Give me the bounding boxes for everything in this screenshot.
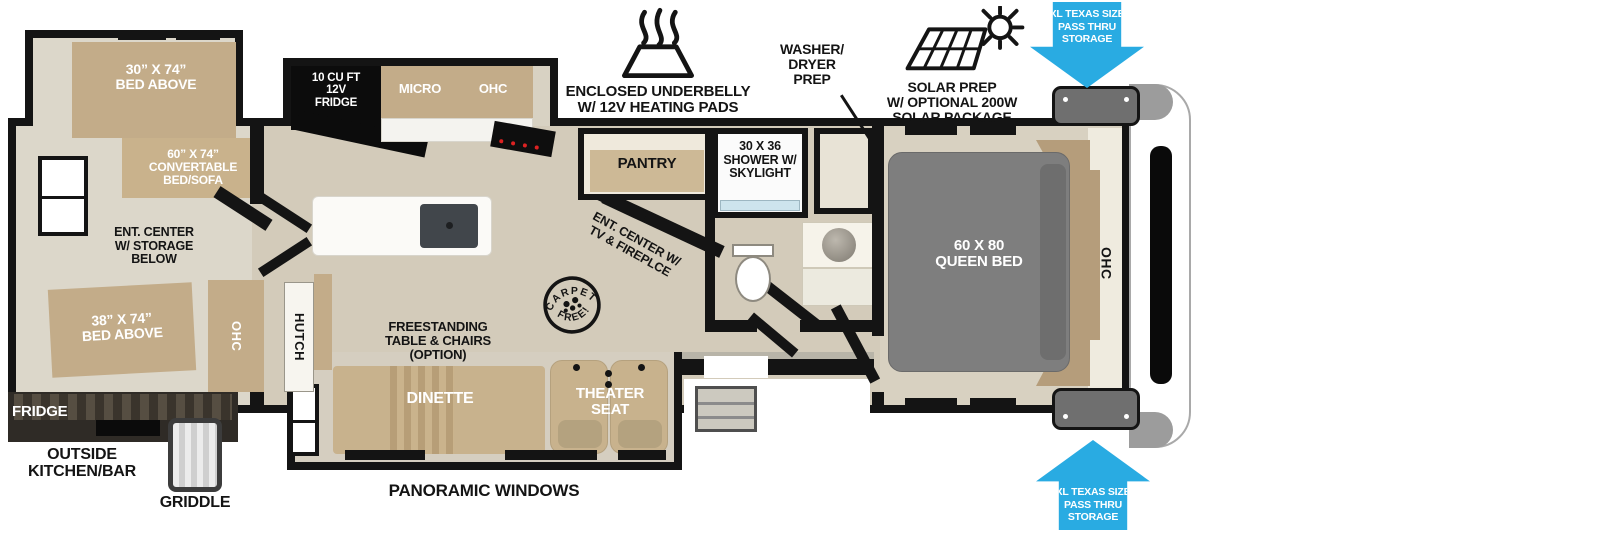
bedroom-window-icon bbox=[905, 398, 957, 407]
bunkroom-wall-upper bbox=[250, 126, 264, 204]
dinette-label: DINETTE bbox=[340, 390, 540, 407]
freestanding-table-label: FREESTANDING TABLE & CHAIRS (OPTION) bbox=[374, 320, 502, 362]
theater-cushion-right bbox=[618, 420, 662, 448]
theater-cushion-left bbox=[558, 420, 602, 448]
panoramic-windows-label: PANORAMIC WINDOWS bbox=[338, 482, 630, 500]
panoramic-window-icon bbox=[345, 450, 425, 460]
entry-door-opening bbox=[704, 356, 768, 378]
bunk-slide-window-icon bbox=[176, 30, 220, 40]
pass-thru-arrow-top: XL TEXAS SIZE PASS THRU STORAGE bbox=[1030, 2, 1144, 88]
queen-bed-label: 60 X 80 QUEEN BED bbox=[890, 238, 1068, 270]
bunk-bed-above-label: 30” X 74” BED ABOVE bbox=[78, 62, 234, 92]
bedroom-window-icon bbox=[970, 126, 1016, 135]
pass-thru-door-bottom bbox=[1052, 388, 1140, 430]
bedroom-window-icon bbox=[970, 398, 1016, 407]
dinette-table bbox=[390, 366, 454, 454]
bedroom-window-icon bbox=[905, 126, 957, 135]
griddle-icon bbox=[168, 418, 222, 492]
dinette-window-icon bbox=[289, 384, 319, 456]
solar-prep-label: SOLAR PREP W/ OPTIONAL 200W SOLAR PACKAG… bbox=[862, 80, 1042, 125]
shower-glass-icon bbox=[720, 200, 800, 211]
bunkroom-window-icon bbox=[38, 156, 88, 236]
hutch-side-cabinet bbox=[314, 274, 332, 370]
bedroom-wall-upper bbox=[872, 126, 884, 336]
kitchen-ohc-label: OHC bbox=[458, 82, 528, 96]
entry-steps bbox=[695, 386, 757, 432]
pass-thru-arrow-bottom: XL TEXAS SIZE PASS THRU STORAGE bbox=[1036, 440, 1150, 530]
solar-prep-icon bbox=[898, 6, 1030, 80]
micro-label: MICRO bbox=[385, 82, 455, 96]
theater-headrest-dot bbox=[605, 370, 612, 377]
bath-vanity-cabinet bbox=[802, 268, 880, 306]
carpet-free-stamp: CARPET FREE! bbox=[535, 268, 609, 342]
heating-pads-icon bbox=[610, 2, 706, 82]
toilet-icon bbox=[735, 256, 771, 302]
hutch-label: HUTCH bbox=[284, 288, 314, 386]
theater-seat-label: THEATER SEAT bbox=[548, 386, 672, 418]
theater-headrest-dot bbox=[573, 364, 580, 371]
pass-thru-door-top bbox=[1052, 86, 1140, 126]
washer-dryer-label: WASHER/ DRYER PREP bbox=[764, 42, 860, 87]
washer-dryer-closet bbox=[814, 128, 874, 214]
shower-label: 30 X 36 SHOWER W/ SKYLIGHT bbox=[714, 140, 806, 181]
panoramic-window-icon bbox=[618, 450, 666, 460]
theater-headrest-dot bbox=[638, 364, 645, 371]
outside-kitchen-label: OUTSIDE KITCHEN/BAR bbox=[12, 446, 152, 481]
bathroom-bottom-wall-left bbox=[705, 320, 757, 332]
kitchen-fridge-label: 10 CU FT 12V FRIDGE bbox=[291, 72, 381, 109]
panoramic-window-icon bbox=[505, 450, 597, 460]
outside-kitchen-appliance bbox=[96, 420, 160, 436]
bedroom-wall-lower bbox=[872, 392, 884, 405]
griddle-label: GRIDDLE bbox=[148, 494, 242, 511]
underbelly-label: ENCLOSED UNDERBELLY W/ 12V HEATING PADS bbox=[552, 84, 764, 116]
front-cap-window-icon bbox=[1150, 146, 1172, 384]
bedroom-ohc-label: OHC bbox=[1092, 230, 1120, 296]
bunk-ent-center-label: ENT. CENTER W/ STORAGE BELOW bbox=[92, 226, 216, 267]
pantry-label: PANTRY bbox=[590, 156, 704, 172]
outside-fridge-label: FRIDGE bbox=[12, 404, 84, 420]
convertible-bed-label: 60” X 74” CONVERTABLE BED/SOFA bbox=[122, 148, 264, 187]
pass-thru-bottom-label: XL TEXAS SIZE PASS THRU STORAGE bbox=[1036, 486, 1150, 524]
island-faucet-icon bbox=[446, 222, 453, 229]
bath-sink-icon bbox=[822, 228, 856, 262]
rv-floorplan: 30” X 74” BED ABOVE 10 CU FT 12V FRIDGE … bbox=[0, 0, 1600, 533]
living-ohc-label: OHC bbox=[214, 300, 258, 372]
pass-thru-top-label: XL TEXAS SIZE PASS THRU STORAGE bbox=[1030, 8, 1144, 46]
bunk-slide-window-icon bbox=[118, 30, 166, 40]
